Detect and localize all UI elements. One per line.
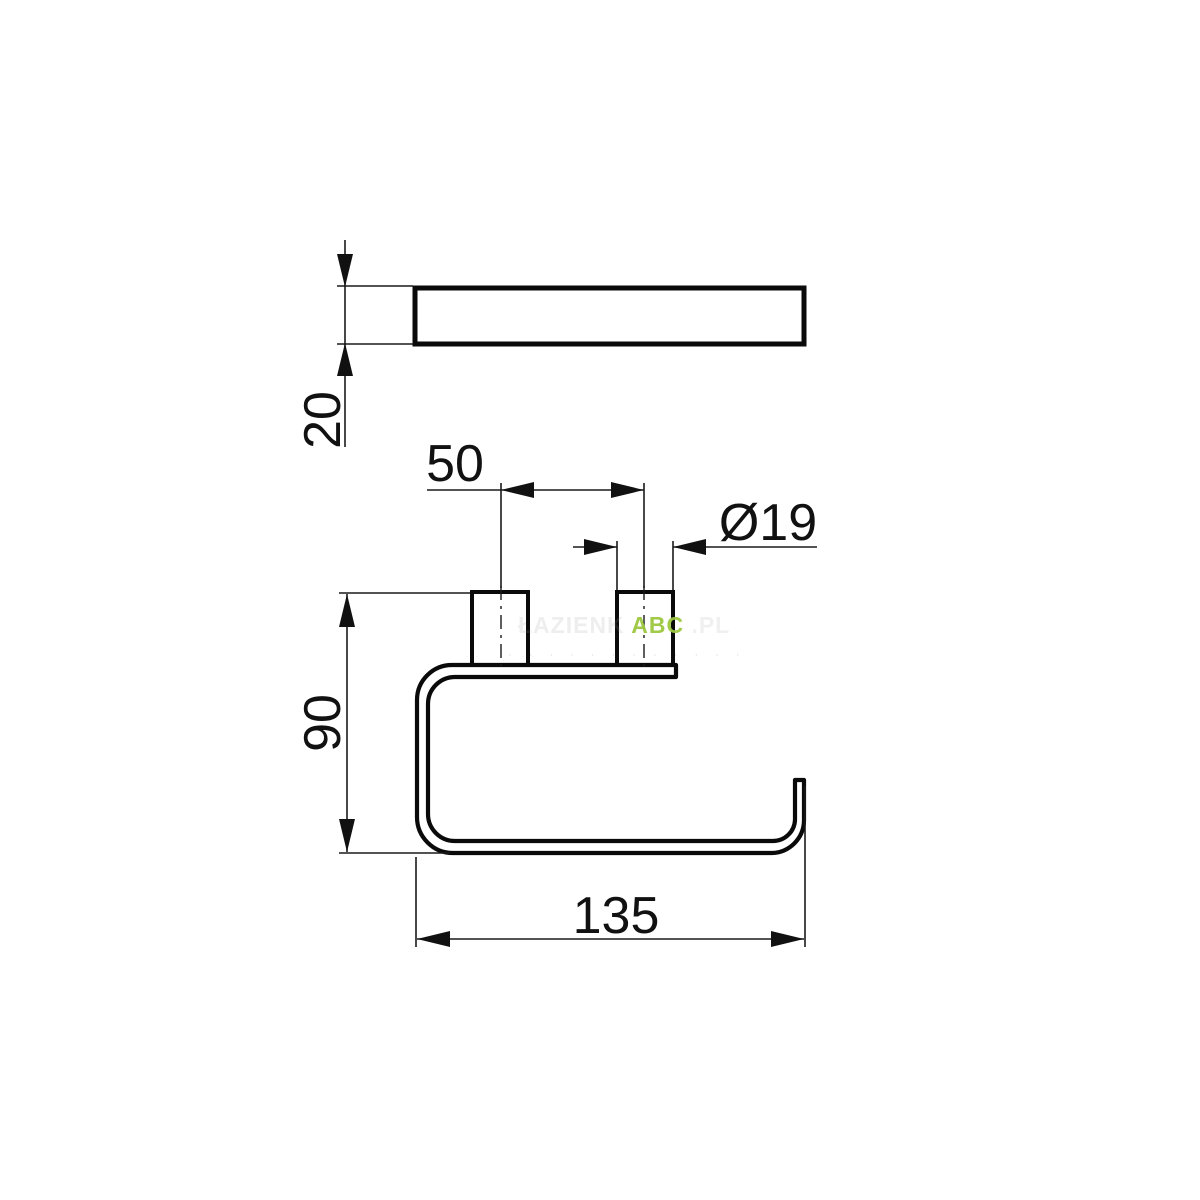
top-view-bar <box>415 288 804 344</box>
technical-drawing-canvas: 20 50 Ø19 <box>0 0 1200 1200</box>
dim-50-arrow-right <box>611 482 644 498</box>
dim-50-label: 50 <box>426 435 484 493</box>
watermark-subline: · · · · · · · · · · · · <box>508 649 747 661</box>
dim-19-arrow-left <box>584 539 617 555</box>
dim-135-arrow-left <box>417 931 450 947</box>
technical-drawing-page: 20 50 Ø19 <box>0 0 1200 1200</box>
top-view <box>415 288 804 344</box>
watermark: ŁAZIENK ABC .PL · · · · · · · · · · · · <box>508 612 747 661</box>
watermark-suffix: .PL <box>691 612 730 638</box>
dim-90-label: 90 <box>294 694 352 752</box>
dim-20-arrow-top <box>337 254 353 287</box>
holder-outline <box>417 665 804 853</box>
dim-19-arrow-right <box>673 539 706 555</box>
dim-135-label: 135 <box>573 887 660 945</box>
dim-135-arrow-right <box>771 931 804 947</box>
svg-text:ŁAZIENK ABC .P: ŁAZIENK ABC .PL <box>518 612 730 638</box>
dim-20-label: 20 <box>294 391 352 449</box>
dim-90-arrow-bottom <box>339 819 355 852</box>
dim-90-arrow-top <box>339 594 355 627</box>
watermark-prefix: ŁAZIENK <box>518 612 625 638</box>
dim-20-arrow-bottom <box>337 343 353 376</box>
dim-spacing <box>427 482 644 588</box>
watermark-brand: ABC <box>631 612 684 638</box>
dim-19-label: Ø19 <box>719 494 817 552</box>
dim-50-arrow-left <box>501 482 534 498</box>
dim-height <box>339 593 470 853</box>
